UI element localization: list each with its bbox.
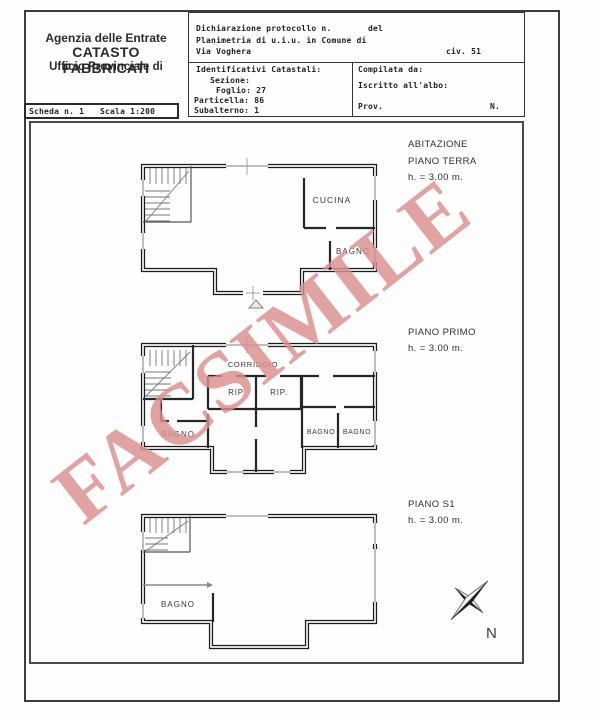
room-label-bagno-mid: BAGNO [307, 429, 335, 436]
room-label-cucina: CUCINA [313, 195, 352, 205]
floor-plan-piano-s1: BAGNO [130, 505, 390, 660]
north-label: N [486, 625, 497, 642]
identificativi-title: Identificativi Catastali: [196, 65, 321, 74]
protocollo-label: Dichiarazione protocollo n. [196, 24, 331, 33]
sezione-line: Sezione: [210, 76, 250, 85]
plan2-height-label: h. = 3.00 m. [408, 343, 463, 354]
form-divider-vertical [352, 62, 353, 117]
del-label: del [368, 24, 383, 33]
room-label-bagno-s1: BAGNO [161, 600, 195, 609]
document-page: Agenzia delle Entrate CATASTO FABBRICATI… [0, 0, 600, 714]
staircase-icon [143, 516, 190, 552]
particella-line: Particella: 86 [194, 96, 264, 105]
room-label-bagno-right: BAGNO [343, 429, 371, 436]
street-value: Via Voghera [196, 47, 251, 56]
civic-number: civ. 51 [446, 47, 481, 56]
subalterno-line: Subalterno: 1 [194, 106, 259, 115]
form-divider-horizontal [189, 62, 524, 63]
plan1-title-abitazione: ABITAZIONE [408, 139, 468, 150]
plan3-height-label: h. = 3.00 m. [408, 515, 463, 526]
plan2-title-piano-primo: PIANO PRIMO [408, 327, 476, 338]
wall-arrow-icon [207, 582, 213, 588]
compilata-label: Compilata da: [358, 65, 423, 74]
prov-label: Prov. [358, 102, 383, 111]
n-label: N. [490, 102, 500, 111]
agency-name: Agenzia delle Entrate [30, 31, 182, 45]
compass-rose-icon: N [440, 570, 510, 648]
ufficio-line: Ufficio Provinciale di [30, 61, 182, 73]
plan3-title-piano-s1: PIANO S1 [408, 499, 455, 510]
foglio-line: Foglio: 27 [216, 86, 266, 95]
planimetria-label: Planimetria di u.i.u. in Comune di [196, 36, 367, 45]
staircase-icon [143, 166, 191, 222]
iscritto-label: Iscritto all'albo: [358, 81, 448, 90]
scala-label: Scala 1:200 [100, 107, 155, 116]
scheda-number: Scheda n. 1 [29, 107, 84, 116]
